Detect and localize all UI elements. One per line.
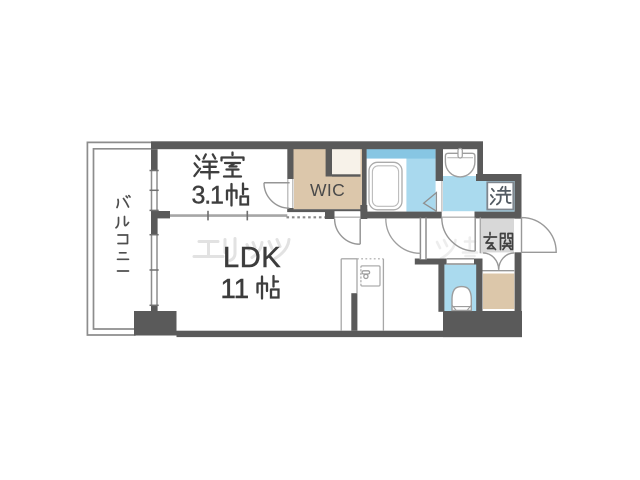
svg-text:11: 11 <box>221 273 250 304</box>
svg-text:WIC: WIC <box>310 180 345 200</box>
svg-text:3.1: 3.1 <box>192 181 223 209</box>
svg-text:LDK: LDK <box>223 242 281 274</box>
